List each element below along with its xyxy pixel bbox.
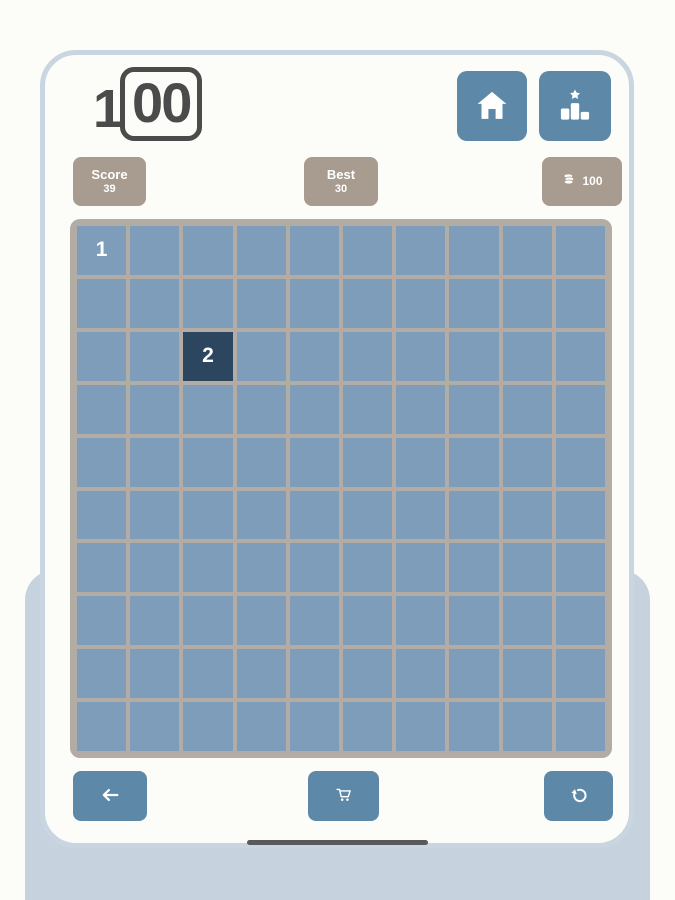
board-cell-5-5[interactable] [343, 491, 392, 540]
board-cell-7-6[interactable] [396, 596, 445, 645]
board-cell-6-4[interactable] [290, 543, 339, 592]
board-cell-1-5[interactable] [343, 279, 392, 328]
home-indicator-bar [247, 840, 428, 845]
board-cell-3-3[interactable] [237, 385, 286, 434]
board-cell-8-9[interactable] [556, 649, 605, 698]
board-cell-3-1[interactable] [130, 385, 179, 434]
board-cell-1-9[interactable] [556, 279, 605, 328]
logo-digits-zeros: 00 [132, 71, 190, 134]
board-cell-5-4[interactable] [290, 491, 339, 540]
board-cell-9-1[interactable] [130, 702, 179, 751]
leaderboard-button[interactable] [539, 71, 611, 141]
board-cell-3-9[interactable] [556, 385, 605, 434]
board-cell-9-5[interactable] [343, 702, 392, 751]
home-button[interactable] [457, 71, 527, 141]
board-cell-6-2[interactable] [183, 543, 232, 592]
board-cell-2-0[interactable] [77, 332, 126, 381]
best-badge: Best 30 [304, 157, 378, 206]
board-cell-5-9[interactable] [556, 491, 605, 540]
board-cell-7-0[interactable] [77, 596, 126, 645]
board-cell-3-4[interactable] [290, 385, 339, 434]
board-cell-7-2[interactable] [183, 596, 232, 645]
board-cell-4-0[interactable] [77, 438, 126, 487]
game-logo: 1 00 [93, 67, 202, 141]
board-cell-7-9[interactable] [556, 596, 605, 645]
board-cell-0-6[interactable] [396, 226, 445, 275]
board-cell-0-2[interactable] [183, 226, 232, 275]
board-cell-5-3[interactable] [237, 491, 286, 540]
board-cell-9-8[interactable] [503, 702, 552, 751]
board-cell-0-8[interactable] [503, 226, 552, 275]
best-value: 30 [335, 183, 347, 196]
board-cell-8-1[interactable] [130, 649, 179, 698]
board-cell-8-4[interactable] [290, 649, 339, 698]
home-icon [474, 88, 510, 124]
board-cell-4-4[interactable] [290, 438, 339, 487]
board-cell-3-6[interactable] [396, 385, 445, 434]
coins-badge[interactable]: 100 [542, 157, 622, 206]
arrow-left-icon [99, 784, 121, 809]
board-cell-4-8[interactable] [503, 438, 552, 487]
board-cell-8-8[interactable] [503, 649, 552, 698]
board-cell-2-6[interactable] [396, 332, 445, 381]
board-cell-6-9[interactable] [556, 543, 605, 592]
cart-icon [335, 786, 353, 807]
podium-star-icon [556, 87, 594, 125]
coins-icon [561, 171, 577, 192]
board-cell-6-3[interactable] [237, 543, 286, 592]
board-cell-3-0[interactable] [77, 385, 126, 434]
board-cell-0-3[interactable] [237, 226, 286, 275]
board-cell-7-4[interactable] [290, 596, 339, 645]
board-cell-3-5[interactable] [343, 385, 392, 434]
board-cell-9-4[interactable] [290, 702, 339, 751]
board-cell-1-1[interactable] [130, 279, 179, 328]
board-cell-9-0[interactable] [77, 702, 126, 751]
best-label: Best [327, 167, 355, 183]
score-label: Score [91, 167, 127, 183]
board-cell-1-8[interactable] [503, 279, 552, 328]
board-cell-0-7[interactable] [449, 226, 498, 275]
board-cell-6-7[interactable] [449, 543, 498, 592]
board-cell-4-1[interactable] [130, 438, 179, 487]
board-cell-6-1[interactable] [130, 543, 179, 592]
board-cell-2-8[interactable] [503, 332, 552, 381]
board-cell-2-3[interactable] [237, 332, 286, 381]
board-cell-1-0[interactable] [77, 279, 126, 328]
board-cell-9-9[interactable] [556, 702, 605, 751]
board-cell-7-7[interactable] [449, 596, 498, 645]
board-cell-8-7[interactable] [449, 649, 498, 698]
board-cell-7-1[interactable] [130, 596, 179, 645]
board-cell-7-5[interactable] [343, 596, 392, 645]
board-cell-1-7[interactable] [449, 279, 498, 328]
board-cell-6-0[interactable] [77, 543, 126, 592]
board-cell-5-7[interactable] [449, 491, 498, 540]
board-cell-2-1[interactable] [130, 332, 179, 381]
board-cell-7-3[interactable] [237, 596, 286, 645]
board-cell-0-0[interactable]: 1 [77, 226, 126, 275]
board-cell-4-7[interactable] [449, 438, 498, 487]
board-cell-8-6[interactable] [396, 649, 445, 698]
board-cell-0-9[interactable] [556, 226, 605, 275]
board-cell-9-3[interactable] [237, 702, 286, 751]
board-cell-7-8[interactable] [503, 596, 552, 645]
board-cell-2-9[interactable] [556, 332, 605, 381]
board-cell-6-8[interactable] [503, 543, 552, 592]
board-cell-2-7[interactable] [449, 332, 498, 381]
score-value: 39 [103, 183, 115, 196]
board-cell-4-5[interactable] [343, 438, 392, 487]
board-cell-3-2[interactable] [183, 385, 232, 434]
board-cell-9-6[interactable] [396, 702, 445, 751]
board-cell-2-4[interactable] [290, 332, 339, 381]
back-button[interactable] [73, 771, 147, 821]
board-cell-5-1[interactable] [130, 491, 179, 540]
undo-button[interactable] [544, 771, 613, 821]
board-cell-8-5[interactable] [343, 649, 392, 698]
board-cell-9-7[interactable] [449, 702, 498, 751]
board-cell-5-2[interactable] [183, 491, 232, 540]
board-cell-8-0[interactable] [77, 649, 126, 698]
board-cell-2-2[interactable]: 2 [183, 332, 232, 381]
shop-button[interactable] [308, 771, 379, 821]
game-card: 1 00 Score 39 Best 30 [40, 50, 634, 848]
board-cell-9-2[interactable] [183, 702, 232, 751]
board-cell-1-6[interactable] [396, 279, 445, 328]
board-cell-4-9[interactable] [556, 438, 605, 487]
board-cell-0-4[interactable] [290, 226, 339, 275]
board-cell-8-2[interactable] [183, 649, 232, 698]
board-cell-6-6[interactable] [396, 543, 445, 592]
logo-digit-one: 1 [93, 82, 121, 136]
score-badge: Score 39 [73, 157, 146, 206]
coins-value: 100 [582, 174, 602, 188]
board-cell-1-2[interactable] [183, 279, 232, 328]
board-cell-4-2[interactable] [183, 438, 232, 487]
board: 12 [70, 219, 612, 758]
board-cell-6-5[interactable] [343, 543, 392, 592]
board-cell-3-7[interactable] [449, 385, 498, 434]
undo-icon [569, 785, 589, 808]
board-cell-0-1[interactable] [130, 226, 179, 275]
board-cell-3-8[interactable] [503, 385, 552, 434]
board-cell-8-3[interactable] [237, 649, 286, 698]
board-cell-4-3[interactable] [237, 438, 286, 487]
board-cell-0-5[interactable] [343, 226, 392, 275]
board-cell-2-5[interactable] [343, 332, 392, 381]
board-cell-1-3[interactable] [237, 279, 286, 328]
board-cell-5-8[interactable] [503, 491, 552, 540]
logo-box: 00 [120, 67, 202, 141]
board-cell-1-4[interactable] [290, 279, 339, 328]
board-cell-5-6[interactable] [396, 491, 445, 540]
board-cell-4-6[interactable] [396, 438, 445, 487]
board-cell-5-0[interactable] [77, 491, 126, 540]
